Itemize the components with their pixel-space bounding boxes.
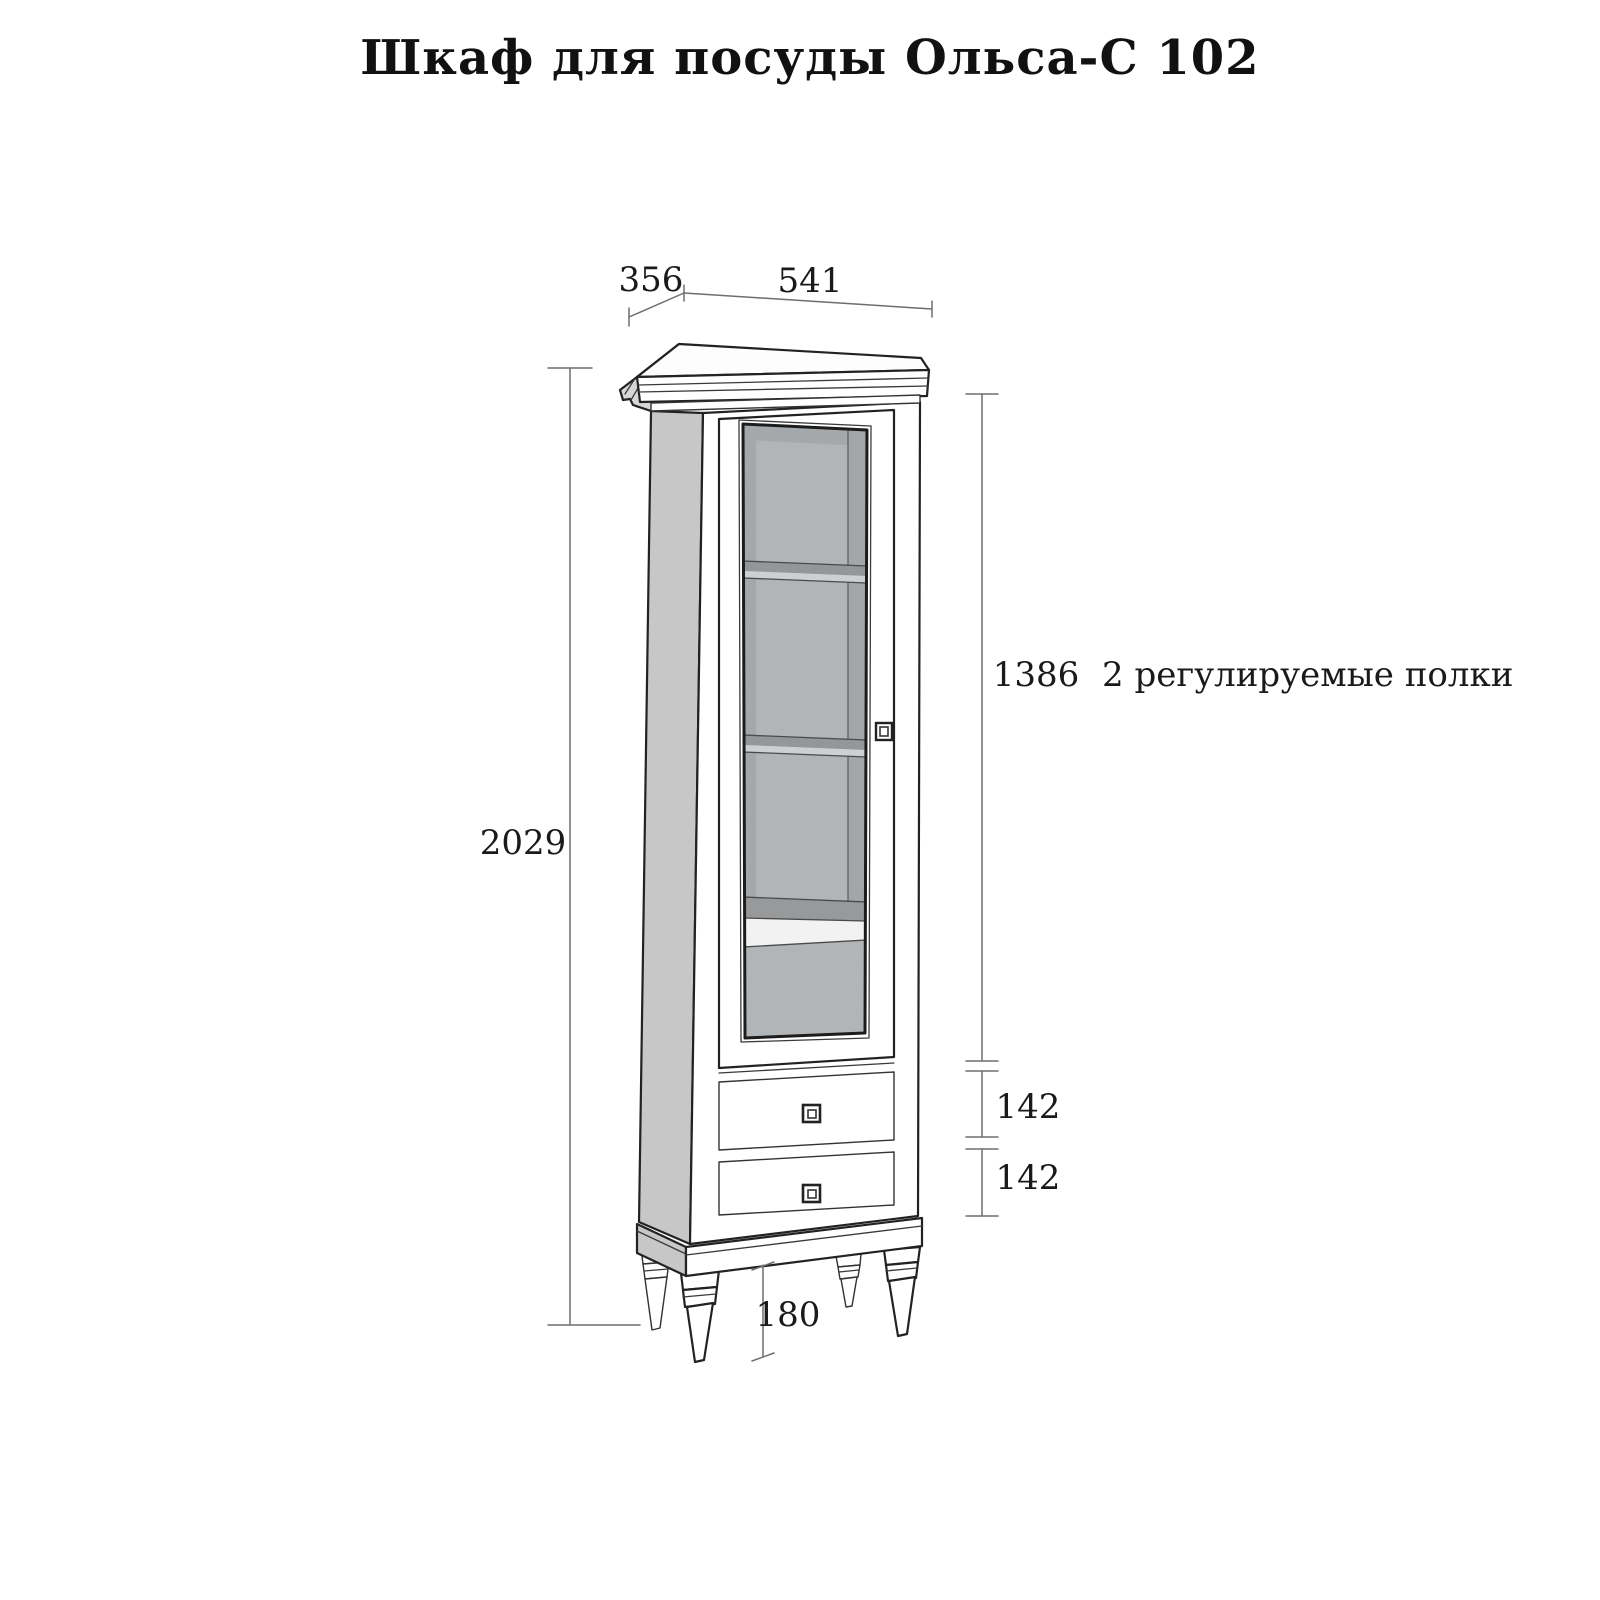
label-glass-section: 1386	[993, 655, 1080, 695]
fixed-bottom-shelf	[743, 897, 867, 947]
crown-molding	[620, 344, 929, 411]
leg-front-left	[681, 1270, 719, 1362]
drawer-bottom	[719, 1152, 894, 1215]
door-knob-inner	[880, 727, 888, 736]
leg-front-right	[884, 1247, 920, 1336]
technical-drawing-page: Шкаф для посуды Ольса-С 102	[0, 0, 1600, 1600]
leg-back-right	[836, 1254, 861, 1307]
dish-cabinet	[620, 344, 929, 1362]
label-legs: 180	[756, 1295, 821, 1335]
drawer-section	[719, 1063, 894, 1215]
label-shelves-note: 2 регулируемые полки	[1102, 655, 1513, 695]
label-drawer-bottom: 142	[996, 1158, 1061, 1198]
leg-shaft	[645, 1277, 667, 1330]
drawer-top	[719, 1072, 894, 1150]
drawer-face	[719, 1152, 894, 1215]
label-depth: 356	[619, 260, 684, 300]
label-drawer-top: 142	[996, 1087, 1061, 1127]
dimension-labels: 356 541 2029 1386 2 регулируемые полки 1…	[480, 260, 1514, 1335]
label-width: 541	[778, 261, 843, 301]
drawer-knob-inner	[808, 1110, 816, 1118]
cabinet-drawing: 356 541 2029 1386 2 регулируемые полки 1…	[0, 0, 1600, 1600]
leg-shaft	[687, 1303, 713, 1362]
leg-shaft	[889, 1277, 915, 1336]
drawer-knob-inner	[808, 1190, 816, 1198]
door-knob	[876, 723, 892, 740]
leg-shaft	[841, 1277, 857, 1307]
label-height: 2029	[480, 823, 567, 863]
